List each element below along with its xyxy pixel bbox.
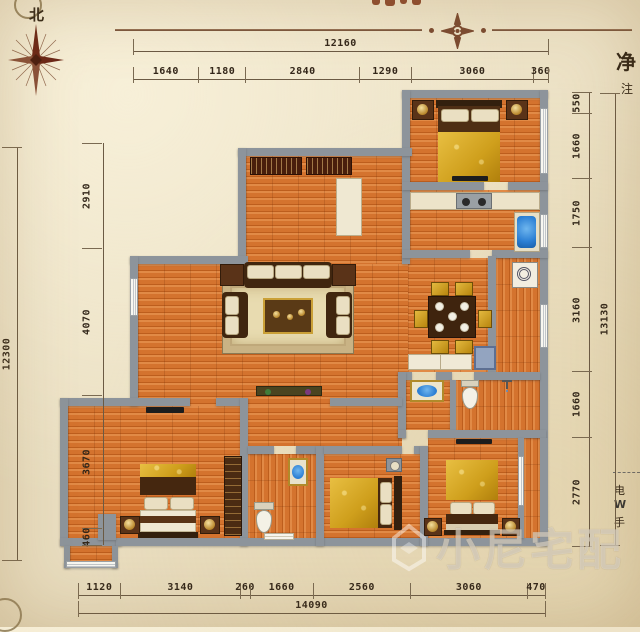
header-dot (429, 28, 434, 33)
dim-label: 2770 (572, 479, 583, 505)
dim-label: 12300 (2, 337, 13, 370)
dim-label: 1290 (372, 66, 398, 77)
window (540, 214, 548, 248)
study-cabinet (336, 178, 362, 236)
dining-chair (478, 310, 492, 328)
stove (456, 193, 492, 209)
watermark-text: 小尼宅配 (436, 514, 624, 578)
pillow (471, 109, 499, 122)
dim-label: 260 (235, 582, 255, 593)
dim-label: 4070 (82, 309, 93, 335)
wall (474, 372, 540, 380)
nightstand (506, 100, 528, 120)
vanity (288, 458, 308, 486)
wall (402, 90, 548, 98)
dim-right-overall: 13130 (598, 93, 618, 545)
wall (248, 446, 274, 454)
dim-top-segments: 16401180284012903060360 (133, 64, 548, 82)
wall (238, 148, 246, 264)
window (66, 561, 116, 568)
dim-label: 1180 (209, 66, 235, 77)
toilet (254, 502, 274, 534)
wall (436, 372, 452, 380)
wall (398, 430, 406, 438)
bookshelf (250, 157, 302, 175)
dining-chair (455, 340, 473, 354)
dim-label: 3060 (459, 66, 485, 77)
wall (402, 250, 470, 258)
dim-bottom-segments: 11203140260166025603060470 (78, 580, 545, 598)
dim-label: 470 (526, 582, 546, 593)
dim-label: 2560 (349, 582, 375, 593)
sofa (244, 262, 332, 288)
armchair (222, 292, 248, 338)
title-fragment (385, 0, 395, 6)
kitchen-sink (517, 216, 536, 248)
toilet (461, 380, 479, 410)
coffee-table (263, 298, 313, 334)
title-fragment (372, 0, 380, 5)
dim-label: 3160 (572, 297, 583, 323)
dim-label: 2910 (82, 183, 93, 209)
bath-mat (264, 533, 294, 540)
tv (452, 176, 488, 181)
dim-label: 550 (572, 93, 583, 113)
cabinet (474, 346, 496, 370)
vanity-sink (292, 465, 304, 479)
compass-rose-icon (4, 24, 68, 96)
dim-label: 3060 (456, 582, 482, 593)
dim-label: 1640 (153, 66, 179, 77)
dining-chair (431, 282, 449, 296)
dim-right-segments: 55016601750316016602770 (570, 92, 592, 546)
header-rule-right (492, 29, 632, 31)
dim-label: 14090 (295, 600, 328, 611)
vanity-sink (417, 385, 437, 397)
shower-head-icon (500, 380, 514, 394)
dim-label: 12160 (324, 38, 357, 49)
header-dot (481, 28, 486, 33)
dim-bottom-overall: 14090 (78, 598, 545, 616)
dining-chair (431, 340, 449, 354)
wall (450, 380, 456, 430)
title-fragment (412, 0, 421, 5)
watermark-house-icon (388, 520, 430, 572)
net-area-label: 净 (616, 46, 636, 75)
dim-label: 1660 (269, 582, 295, 593)
wall (60, 398, 68, 546)
window (540, 108, 548, 174)
wall (402, 90, 410, 264)
side-table (220, 264, 244, 286)
armchair (326, 292, 352, 338)
watermark: 小尼宅配 (388, 514, 624, 578)
window (518, 456, 524, 506)
floorplan-page: { "compass": { "north": "北" }, "annotati… (0, 0, 640, 627)
dim-top-overall: 12160 (133, 36, 548, 54)
wardrobe (224, 456, 242, 536)
bed (140, 464, 196, 538)
tv (146, 407, 184, 413)
bookshelf (306, 157, 352, 175)
wall (324, 446, 402, 454)
tv-console (256, 386, 322, 396)
wall (428, 430, 546, 438)
dim-label: 1660 (572, 133, 583, 159)
wall-unit (386, 458, 402, 472)
bay-window-floor (70, 546, 112, 562)
header-rule-left (115, 29, 422, 31)
dining-chair (414, 310, 428, 328)
hallway-floor (242, 406, 402, 446)
nightstand (412, 100, 434, 120)
dim-left-segments: 291040703670460 (80, 143, 106, 545)
dim-label: 3670 (82, 449, 93, 475)
washing-machine (512, 262, 538, 288)
bed-cover (438, 132, 500, 182)
dim-label: 3140 (167, 582, 193, 593)
nightstand (200, 516, 220, 534)
dim-label: 1660 (572, 391, 583, 417)
compass-north-label: 北 (29, 4, 44, 25)
dim-label: 1120 (86, 582, 112, 593)
pillow (441, 109, 469, 122)
nightstand (120, 516, 140, 534)
dim-label: 13130 (600, 303, 611, 336)
sink-counter (514, 212, 540, 252)
wall (316, 446, 324, 546)
title-fragment (400, 0, 407, 4)
note-label: 注 (621, 80, 633, 97)
wall (508, 182, 548, 190)
dim-label: 2840 (290, 66, 316, 77)
dim-left-overall: 12300 (0, 147, 20, 560)
vanity (410, 380, 444, 402)
wall (402, 182, 484, 190)
wall (238, 148, 412, 156)
dining-table (428, 296, 476, 338)
window (130, 278, 138, 316)
wall (130, 256, 248, 264)
window (540, 304, 548, 348)
dim-label: 1750 (572, 200, 583, 226)
dining-chair (455, 282, 473, 296)
wall (330, 398, 402, 406)
side-table (332, 264, 356, 286)
tv (456, 439, 492, 444)
shoe-cabinet (408, 354, 472, 370)
